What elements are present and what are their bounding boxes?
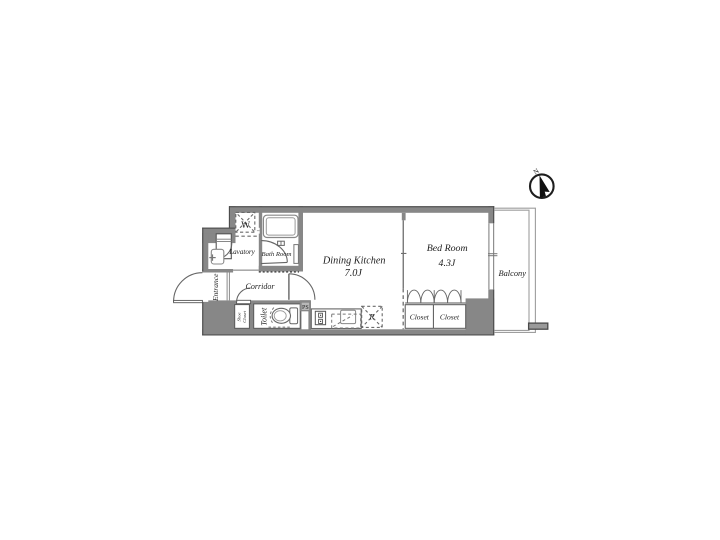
svg-text:Entrance: Entrance bbox=[211, 273, 220, 302]
svg-text:Corridor: Corridor bbox=[246, 282, 276, 291]
svg-text:Closet: Closet bbox=[410, 313, 430, 322]
svg-text:Closet: Closet bbox=[242, 310, 247, 322]
svg-text:W: W bbox=[241, 221, 250, 231]
svg-text:Lavatory: Lavatory bbox=[228, 248, 255, 256]
svg-text:Closet: Closet bbox=[440, 313, 460, 322]
svg-text:Toilet: Toilet bbox=[259, 307, 268, 326]
svg-text:Balcony: Balcony bbox=[498, 269, 526, 278]
svg-text:R: R bbox=[368, 312, 374, 321]
svg-text:Bath Room: Bath Room bbox=[262, 251, 292, 258]
svg-text:7.0J: 7.0J bbox=[345, 268, 363, 279]
svg-text:Dining Kitchen: Dining Kitchen bbox=[322, 255, 386, 266]
svg-text:PS: PS bbox=[302, 305, 309, 311]
svg-text:4.3J: 4.3J bbox=[439, 258, 456, 269]
svg-text:Bed Room: Bed Room bbox=[427, 243, 468, 254]
